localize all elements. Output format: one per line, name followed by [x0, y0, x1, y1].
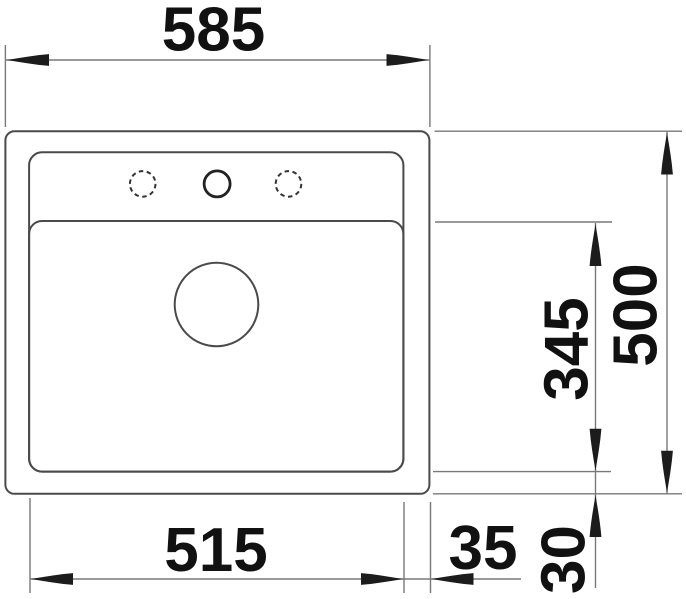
svg-text:345: 345 [533, 297, 602, 400]
svg-text:585: 585 [162, 0, 265, 65]
svg-text:500: 500 [602, 263, 671, 366]
svg-text:30: 30 [530, 525, 599, 594]
svg-text:515: 515 [164, 516, 267, 585]
svg-text:35: 35 [449, 514, 518, 583]
